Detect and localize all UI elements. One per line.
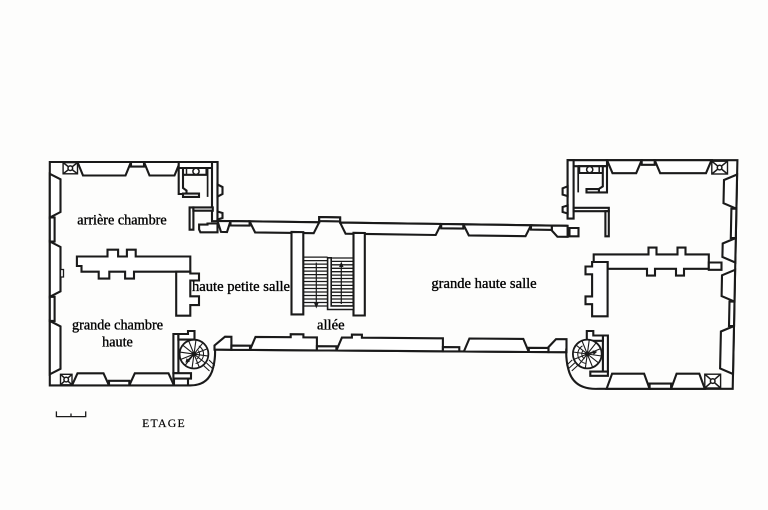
- svg-text:allée: allée: [317, 318, 345, 334]
- svg-text:haute petite salle: haute petite salle: [192, 279, 290, 295]
- svg-text:arrière chambre: arrière chambre: [77, 213, 166, 229]
- svg-text:grande chambre: grande chambre: [72, 318, 163, 334]
- svg-text:grande haute salle: grande haute salle: [431, 276, 536, 292]
- svg-text:haute: haute: [102, 335, 133, 351]
- svg-text:ETAGE: ETAGE: [142, 416, 186, 430]
